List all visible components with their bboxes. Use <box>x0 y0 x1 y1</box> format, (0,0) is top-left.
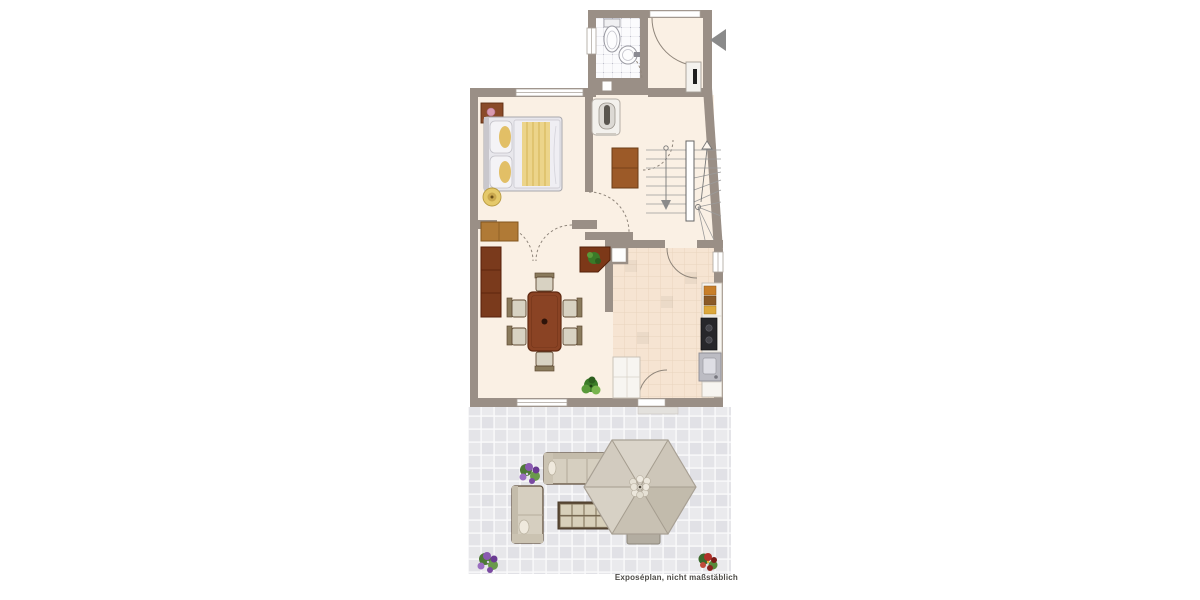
parasol-finial <box>630 476 651 499</box>
hall-cabinet <box>612 148 638 188</box>
hallway-south-wall <box>585 232 633 240</box>
kitchen-sink-icon <box>699 353 721 381</box>
bedroom-bottom-wall-right <box>572 220 597 229</box>
bedroom <box>481 103 562 206</box>
terrace-door-threshold <box>638 407 678 414</box>
chimney-shaft <box>611 247 627 263</box>
bedroom-window <box>516 89 583 96</box>
kitchen-top-wall-right <box>697 240 723 248</box>
blanket <box>522 122 550 186</box>
pantry-shelf <box>704 286 716 314</box>
bathroom-window <box>587 28 596 54</box>
kitchen-window <box>713 252 723 272</box>
floor-plan-drawing <box>0 0 1200 600</box>
fridge-icon <box>686 62 701 92</box>
annex-right-wall <box>703 18 712 95</box>
double-bed <box>484 117 562 191</box>
water-heater-icon <box>592 99 620 136</box>
main-bottom-wall <box>470 398 723 407</box>
entrance-door-opening <box>650 11 700 17</box>
terrace <box>468 407 731 574</box>
bathroom-bottom-wall <box>588 78 648 95</box>
toilet-icon <box>604 19 620 52</box>
living-room-window <box>517 399 567 406</box>
bedside-table-round <box>483 188 501 206</box>
main-left-wall <box>470 88 478 407</box>
outdoor-sofa-left <box>512 486 543 543</box>
dining-table <box>528 292 561 351</box>
entrance-arrow-icon <box>710 29 726 51</box>
wall-niche <box>602 81 612 91</box>
kitchen-counter-bottom <box>613 357 640 398</box>
stair-divider <box>686 141 694 221</box>
sideboard <box>481 222 518 241</box>
tall-cabinet <box>481 247 501 317</box>
entry-hall <box>686 62 701 92</box>
terrace-door-opening <box>638 399 665 406</box>
main-top-wall-right <box>648 88 712 97</box>
plan-caption: Exposéplan, nicht maßstäblich <box>615 573 738 582</box>
stove-icon <box>701 318 717 350</box>
floor-plan-page: Exposéplan, nicht maßstäblich <box>0 0 1200 600</box>
faucet-icon <box>634 52 640 57</box>
